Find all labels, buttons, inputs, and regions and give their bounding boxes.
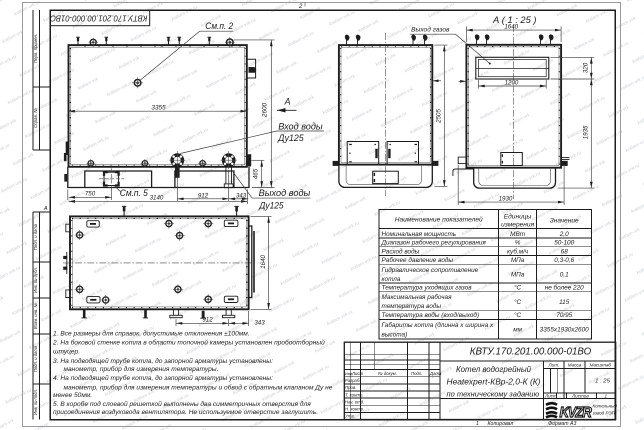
svg-text:Разраб.: Разраб.	[345, 378, 361, 383]
svg-text:Листов: Листов	[571, 393, 589, 398]
svg-text:Heatexpert-КВр-2,0-К (К): Heatexpert-КВр-2,0-К (К)	[447, 377, 541, 387]
svg-text:1930: 1930	[499, 195, 513, 202]
svg-text:1. Все размеры для справок, до: 1. Все размеры для справок, допустимые о…	[53, 329, 250, 337]
svg-text:по техническому заданию: по техническому заданию	[446, 389, 539, 398]
svg-text:Формат А3: Формат А3	[548, 421, 576, 427]
svg-text:Ду125: Ду125	[277, 133, 304, 143]
svg-text:1200: 1200	[505, 79, 519, 86]
svg-text:Лит.: Лит.	[548, 363, 560, 368]
svg-text:МВт: МВт	[510, 231, 526, 238]
svg-text:1 : 25: 1 : 25	[595, 379, 610, 385]
svg-text:Справ. №: Справ. №	[33, 108, 38, 128]
svg-text:343: 343	[236, 193, 247, 200]
svg-text:°С: °С	[514, 284, 522, 292]
svg-text:Взам. инв. №: Взам. инв. №	[33, 303, 38, 329]
svg-text:68: 68	[561, 248, 569, 255]
svg-text:Выход газов: Выход газов	[411, 26, 450, 34]
svg-text:мм: мм	[513, 327, 522, 334]
svg-text:3140: 3140	[150, 195, 164, 202]
svg-text:куб.м/ч: куб.м/ч	[507, 247, 529, 255]
svg-text:Утв.: Утв.	[345, 414, 355, 419]
svg-text:штуцер.: штуцер.	[53, 349, 80, 356]
svg-text:манометр, прибор для измерения: манометр, прибор для измерения температу…	[64, 383, 333, 391]
svg-text:Выход воды: Выход воды	[259, 188, 311, 198]
svg-text:Т. контр.: Т. контр.	[345, 392, 364, 397]
svg-text:МПа: МПа	[511, 257, 525, 264]
svg-text:Расход воды: Расход воды	[382, 247, 420, 255]
svg-text:Подп. и дата: Подп. и дата	[33, 223, 38, 250]
svg-text:1640: 1640	[504, 23, 518, 30]
svg-text:°С: °С	[514, 298, 522, 306]
svg-text:912: 912	[202, 317, 213, 324]
svg-text:Масса: Масса	[568, 363, 582, 368]
svg-text:5. В коробе под слоевой решетк: 5. В коробе под слоевой решеткой выполне…	[53, 400, 311, 408]
svg-text:Единицы: Единицы	[504, 212, 532, 220]
svg-text:3355х1930х2600: 3355х1930х2600	[540, 327, 589, 334]
svg-text:Перв. примен.: Перв. примен.	[33, 34, 38, 63]
svg-text:Температура уходящих газов: Температура уходящих газов	[382, 284, 473, 292]
svg-text:KVZR: KVZR	[560, 404, 592, 421]
svg-text:высота): высота)	[382, 331, 408, 338]
svg-text:%: %	[515, 240, 521, 247]
svg-text:1640: 1640	[260, 255, 267, 269]
svg-text:температура воды: температура воды	[382, 302, 442, 310]
svg-text:0,3-0,6: 0,3-0,6	[554, 257, 574, 264]
svg-text:См.п. 2: См.п. 2	[205, 21, 233, 31]
svg-text:Номинальная мощность: Номинальная мощность	[382, 231, 457, 238]
svg-text:Инв. № подл.: Инв. № подл.	[33, 389, 38, 415]
svg-text:Котельный: Котельный	[593, 403, 618, 409]
svg-text:Подп. и дата: Подп. и дата	[33, 345, 38, 372]
svg-text:0,1: 0,1	[560, 271, 569, 278]
svg-text:См.п. 5: См.п. 5	[120, 188, 149, 198]
svg-text:Копировал: Копировал	[488, 421, 514, 427]
svg-text:завод РЭП: завод РЭП	[592, 411, 616, 416]
svg-text:не более 220: не более 220	[545, 284, 584, 292]
svg-text:2. На боковой стенке котла в о: 2. На боковой стенке котла в области топ…	[52, 339, 325, 347]
svg-text:°С: °С	[514, 311, 522, 319]
svg-text:Максимальная рабочая: Максимальная рабочая	[382, 293, 453, 301]
svg-text:Температура воды (вход/выход): Температура воды (вход/выход)	[382, 311, 480, 319]
svg-text:А: А	[43, 206, 48, 212]
svg-text:измерения: измерения	[501, 221, 534, 228]
svg-text:Лист: Лист	[544, 393, 557, 398]
svg-text:Диапазон рабочего регулировани: Диапазон рабочего регулирования	[381, 239, 487, 247]
svg-text:Подп.: Подп.	[411, 371, 422, 376]
svg-text:750: 750	[85, 191, 96, 198]
svg-text:Н. контр.: Н. контр.	[345, 407, 364, 412]
svg-text:2505: 2505	[435, 109, 442, 124]
svg-text:менее 50мм.: менее 50мм.	[53, 392, 92, 399]
svg-text:КВТУ.170.201.00.000-01ВО: КВТУ.170.201.00.000-01ВО	[470, 347, 592, 358]
svg-text:1: 1	[476, 421, 479, 427]
svg-text:Гидравлическое сопротивление: Гидравлическое сопротивление	[382, 266, 479, 274]
svg-text:320: 320	[583, 62, 590, 73]
svg-text:Лист: Лист	[351, 371, 363, 376]
svg-text:Нач. отд.: Нач. отд.	[345, 399, 364, 404]
svg-text:Инв. № дубл.: Инв. № дубл.	[33, 267, 38, 293]
svg-text:3355: 3355	[151, 104, 166, 111]
svg-text:Наименование показателей: Наименование показателей	[395, 216, 483, 224]
svg-text:котла: котла	[382, 276, 401, 283]
svg-text:№ докум.: № докум.	[378, 371, 397, 376]
svg-text:манометр, прибор для измерения: манометр, прибор для измерения температу…	[64, 365, 219, 373]
svg-text:Дата: Дата	[429, 371, 442, 376]
svg-text:70/95: 70/95	[556, 312, 572, 319]
svg-text:А: А	[284, 97, 291, 107]
svg-text:1935: 1935	[583, 125, 590, 139]
svg-text:Масштаб: Масштаб	[590, 363, 612, 368]
svg-text:4. На подводящей трубе котла,: 4. На подводящей трубе котла, до запорно…	[53, 374, 273, 382]
svg-text:50-100: 50-100	[554, 240, 574, 247]
svg-text:Ду125: Ду125	[258, 200, 284, 210]
svg-text:2: 2	[298, 4, 303, 10]
svg-text:465: 465	[253, 168, 260, 179]
svg-text:Рабочее давление воды: Рабочее давление воды	[382, 256, 454, 264]
svg-text:Котел водогрейный: Котел водогрейный	[456, 365, 532, 374]
svg-text:3. На подводящей трубе котла,: 3. На подводящей трубе котла, до запорно…	[53, 357, 273, 365]
svg-text:КВТУ.170.201.00.000-01ВО: КВТУ.170.201.00.000-01ВО	[50, 13, 148, 22]
svg-text:912: 912	[198, 193, 209, 200]
svg-text:Пров.: Пров.	[345, 385, 356, 390]
svg-text:343: 343	[254, 320, 265, 327]
svg-text:Вход воды: Вход воды	[278, 121, 323, 131]
svg-text:2600: 2600	[261, 102, 268, 118]
svg-text:МПа: МПа	[511, 271, 525, 278]
svg-text:Габариты котла (длинна х ширин: Габариты котла (длинна х ширина х	[382, 321, 495, 329]
svg-text:Значение: Значение	[550, 217, 579, 224]
svg-text:присоединения воздуховода вент: присоединения воздуховода вентилятора. Н…	[53, 408, 318, 416]
svg-text:1: 1	[605, 393, 608, 398]
svg-text:2,0: 2,0	[559, 231, 569, 238]
svg-text:115: 115	[559, 299, 570, 306]
